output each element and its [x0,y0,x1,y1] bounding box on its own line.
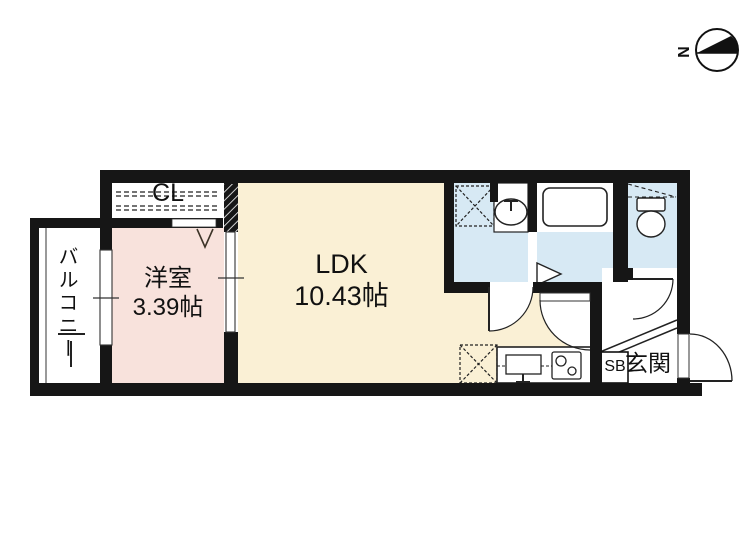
compass-icon [696,29,738,71]
ldk-label: LDK 10.43帖 [239,248,444,312]
ldk-size: 10.43帖 [239,280,444,312]
ldk-name: LDK [239,248,444,280]
western-room-label: 洋室 3.39帖 [112,264,224,322]
balcony-label: バルコニー [55,246,77,361]
stove-icon [552,352,581,379]
kitchen-counter [497,347,592,383]
western-room-name: 洋室 [112,264,224,293]
western-room-size: 3.39帖 [112,293,224,322]
closet-opening [172,219,216,227]
toilet-icon [637,198,665,237]
closet-label: CL [112,179,224,208]
washbasin-icon [494,183,528,232]
floor-plan: 洋室 3.39帖 LDK 10.43帖 CL バルコニー 玄関 SB N [0,0,750,550]
north-label: N [673,46,691,58]
bathtub-icon [543,188,607,226]
entrance-door-icon [678,334,732,381]
shoebox-label: SB [601,358,629,376]
